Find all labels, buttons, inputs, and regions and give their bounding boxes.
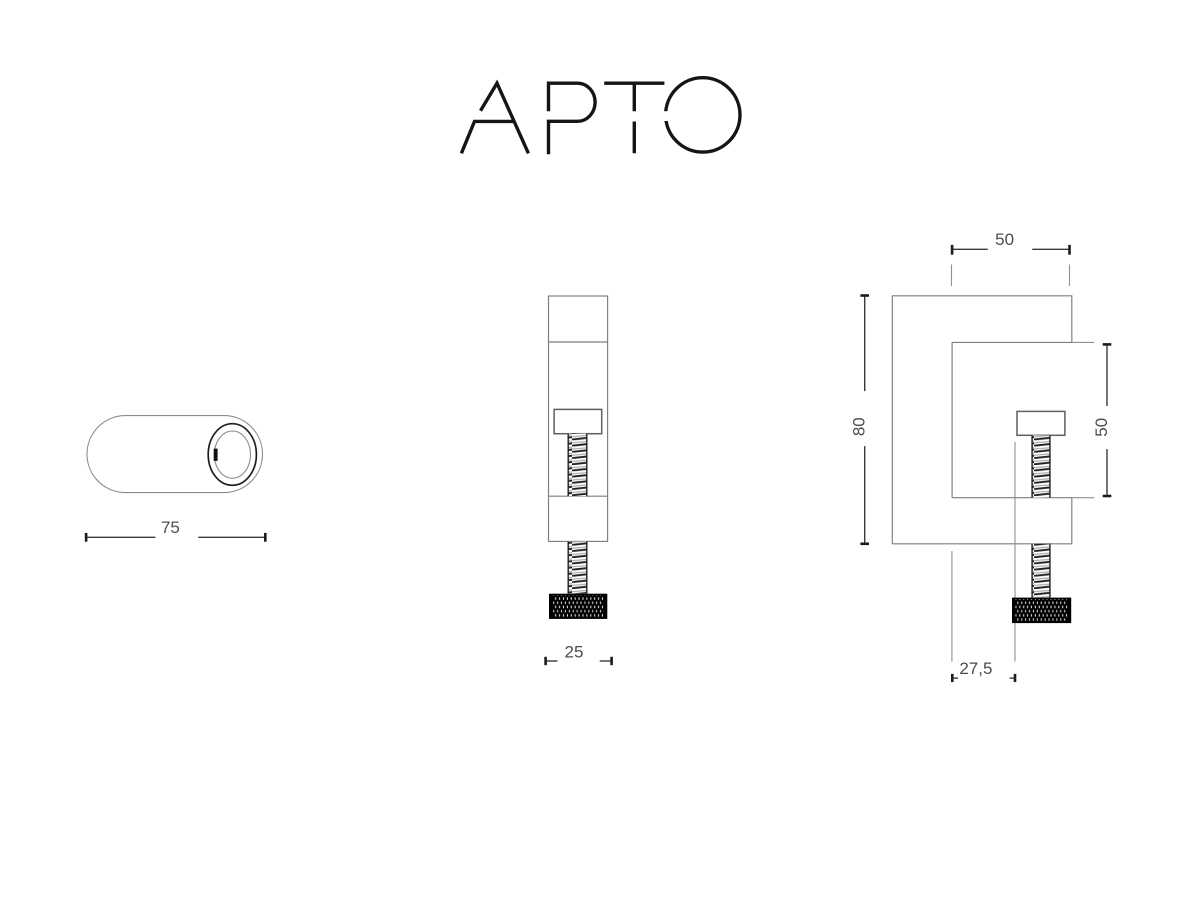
svg-text:75: 75 xyxy=(161,518,180,537)
svg-text:25: 25 xyxy=(565,642,584,661)
svg-text:27,5: 27,5 xyxy=(959,659,992,678)
svg-text:50: 50 xyxy=(1092,418,1111,437)
svg-text:50: 50 xyxy=(995,230,1014,249)
svg-text:80: 80 xyxy=(849,417,868,436)
